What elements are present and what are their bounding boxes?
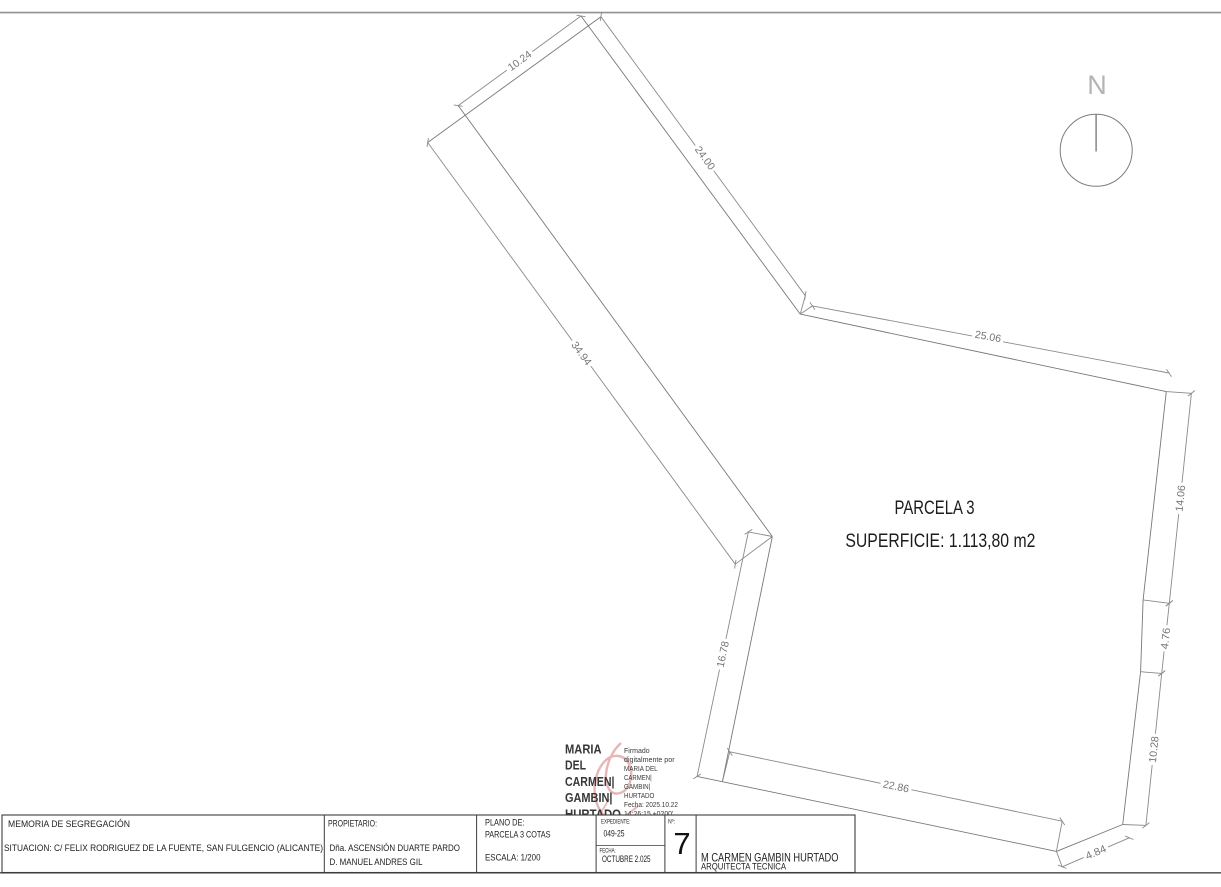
svg-text:ESCALA: 1/200: ESCALA: 1/200: [485, 853, 541, 864]
svg-text:N: N: [1087, 70, 1107, 100]
svg-text:MARIA: MARIA: [565, 742, 602, 757]
svg-text:Fecha: 2025.10.22: Fecha: 2025.10.22: [624, 800, 678, 809]
svg-text:7: 7: [673, 826, 690, 861]
svg-text:MARIA DEL: MARIA DEL: [624, 764, 658, 773]
svg-text:GAMBIN|: GAMBIN|: [624, 782, 650, 791]
svg-text:SITUACION: C/ FELIX RODRIGUEZ: SITUACION: C/ FELIX RODRIGUEZ DE LA FUEN…: [4, 843, 323, 853]
svg-text:PARCELA 3: PARCELA 3: [895, 497, 975, 519]
svg-text:MEMORIA DE SEGREGACIÓN: MEMORIA DE SEGREGACIÓN: [8, 819, 130, 830]
svg-text:CARMEN|: CARMEN|: [624, 773, 652, 782]
svg-text:digitalmente por: digitalmente por: [624, 755, 675, 764]
svg-text:OCTUBRE 2.025: OCTUBRE 2.025: [602, 854, 651, 864]
svg-text:SUPERFICIE: 1.113,80 m2: SUPERFICIE: 1.113,80 m2: [845, 530, 1035, 552]
svg-text:4.76: 4.76: [1159, 627, 1173, 650]
svg-text:D. MANUEL ANDRES GIL: D. MANUEL ANDRES GIL: [330, 857, 423, 868]
svg-text:049-25: 049-25: [604, 829, 625, 839]
svg-text:HURTADO: HURTADO: [624, 791, 654, 800]
svg-text:DEL: DEL: [565, 758, 586, 773]
svg-text:Nº:: Nº:: [668, 818, 675, 825]
svg-text:PARCELA 3 COTAS: PARCELA 3 COTAS: [485, 830, 551, 841]
svg-text:PROPIETARIO:: PROPIETARIO:: [328, 819, 377, 829]
svg-text:Firmado: Firmado: [624, 746, 650, 755]
svg-text:PLANO DE:: PLANO DE:: [485, 818, 525, 829]
svg-text:CARMEN|: CARMEN|: [565, 774, 615, 789]
svg-text:EXPEDIENTE:: EXPEDIENTE:: [601, 820, 631, 826]
svg-text:Dña. ASCENSIÓN DUARTE PARDO: Dña. ASCENSIÓN DUARTE PARDO: [330, 843, 461, 854]
svg-text:GAMBIN|: GAMBIN|: [565, 790, 613, 805]
svg-text:ARQUITECTA TECNICA: ARQUITECTA TECNICA: [701, 862, 787, 873]
